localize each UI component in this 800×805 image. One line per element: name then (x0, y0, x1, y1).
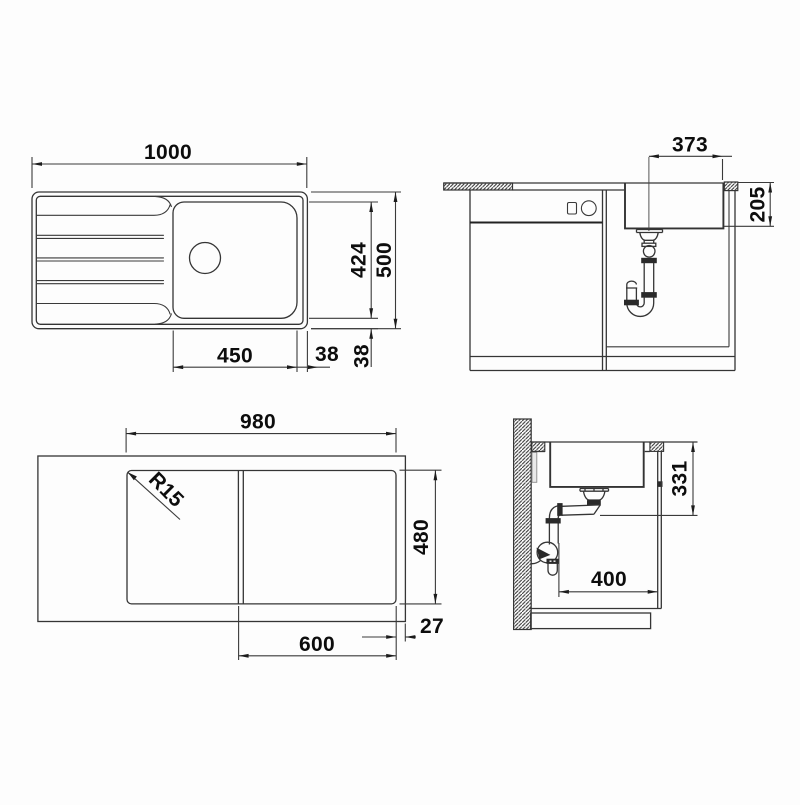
svg-text:500: 500 (373, 242, 396, 278)
svg-text:38: 38 (315, 343, 339, 366)
svg-text:450: 450 (217, 345, 253, 368)
svg-text:1000: 1000 (144, 141, 192, 164)
svg-text:480: 480 (410, 519, 433, 555)
svg-text:205: 205 (747, 187, 770, 223)
svg-text:400: 400 (591, 568, 627, 591)
svg-text:27: 27 (420, 615, 444, 638)
svg-text:980: 980 (240, 411, 276, 434)
svg-text:424: 424 (348, 242, 371, 278)
svg-text:331: 331 (669, 461, 692, 497)
svg-text:600: 600 (299, 633, 335, 656)
svg-text:373: 373 (672, 133, 708, 156)
svg-text:38: 38 (351, 344, 374, 368)
